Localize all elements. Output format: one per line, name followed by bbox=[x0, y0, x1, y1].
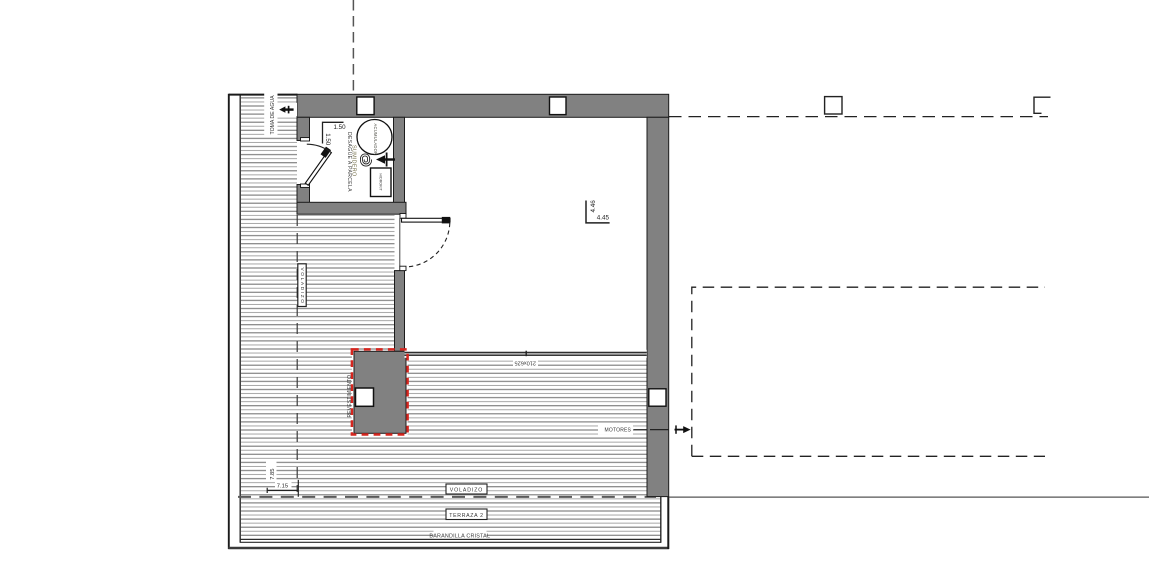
svg-text:4.45: 4.45 bbox=[597, 214, 610, 221]
svg-text:VOLADIZO: VOLADIZO bbox=[299, 268, 305, 305]
svg-text:7.85: 7.85 bbox=[270, 469, 276, 480]
svg-text:7.15: 7.15 bbox=[277, 484, 288, 490]
svg-text:MOTORES: MOTORES bbox=[605, 428, 632, 434]
svg-text:4.46: 4.46 bbox=[590, 200, 597, 213]
svg-text:TERRAZA 2: TERRAZA 2 bbox=[449, 513, 484, 519]
svg-text:REVESTIMIENTO: REVESTIMIENTO bbox=[347, 375, 353, 418]
svg-text:ACUMULADOR: ACUMULADOR bbox=[373, 124, 378, 156]
svg-text:DESAGÜE A PARCELA: DESAGÜE A PARCELA bbox=[346, 132, 353, 192]
svg-text:BARANDILLA CRISTAL: BARANDILLA CRISTAL bbox=[429, 534, 490, 540]
svg-text:210x625: 210x625 bbox=[515, 360, 536, 366]
svg-text:TOMA DE AGUA: TOMA DE AGUA bbox=[270, 95, 276, 135]
svg-text:HIDROKIT: HIDROKIT bbox=[378, 174, 382, 192]
svg-text:1.50: 1.50 bbox=[334, 124, 347, 131]
svg-text:VOLADIZO: VOLADIZO bbox=[450, 488, 483, 494]
svg-text:1.50: 1.50 bbox=[324, 133, 331, 146]
